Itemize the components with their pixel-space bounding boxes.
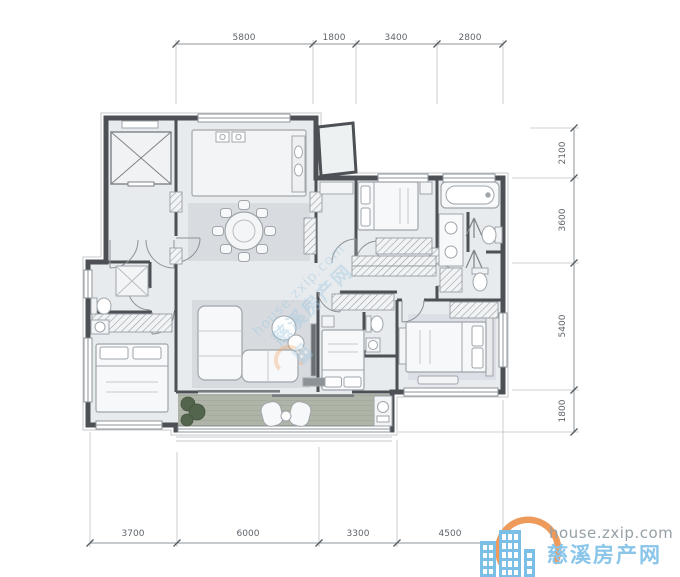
dim-top-2: 1800 [323, 33, 346, 43]
dim-right-1: 2100 [558, 141, 568, 164]
bedroom4-south-window [96, 421, 162, 429]
bedroom2-wardrobe [376, 238, 432, 254]
dimension-bottom: 3700 6000 3300 4500 [87, 529, 507, 547]
bed [322, 330, 364, 390]
column [170, 248, 182, 264]
bath-cabinet [440, 268, 462, 292]
dim-right-2: 3600 [558, 208, 568, 231]
bed [406, 318, 493, 376]
dim-right-4: 1800 [558, 399, 568, 422]
bathtub-icon [441, 182, 499, 208]
sink-icon [292, 136, 305, 192]
floor-plan-canvas: 5800 1800 3400 2800 2100 3600 5400 1800 … [0, 0, 680, 577]
bedroom3-wardrobe [332, 294, 394, 310]
dimension-right: 2100 3600 5400 1800 [558, 125, 578, 436]
dim-top-1: 5800 [233, 33, 256, 43]
sink-icon [91, 320, 109, 334]
bedroom2-window [378, 174, 428, 182]
hall-closet [352, 266, 436, 276]
bed [96, 344, 168, 412]
nightstand [322, 316, 334, 327]
dining-room [213, 201, 276, 262]
bench [418, 376, 458, 384]
bed [358, 182, 418, 230]
floor-plan-page: 5800 1800 3400 2800 2100 3600 5400 1800 … [0, 0, 680, 577]
dim-bottom-1: 3700 [122, 529, 145, 539]
master-east-window [499, 313, 507, 367]
column [310, 192, 322, 212]
nightstand [420, 182, 432, 194]
hall-closet [352, 256, 436, 266]
sideboard [304, 218, 316, 254]
dimension-top: 5800 1800 3400 2800 [173, 33, 507, 48]
shower-stall [116, 266, 148, 296]
toilet-icon [91, 298, 111, 314]
column [170, 192, 182, 212]
dim-bottom-2: 6000 [237, 529, 260, 539]
dim-top-4: 2800 [459, 33, 482, 43]
balcony-glazing [178, 426, 390, 432]
lobby-vent [122, 121, 158, 128]
pantry [320, 182, 353, 194]
utility-closet [374, 396, 392, 426]
bedroom-4 [96, 344, 168, 412]
sink-icon [366, 338, 380, 352]
vanity [439, 214, 463, 266]
dim-bottom-4: 4500 [439, 529, 462, 539]
floor-plan [83, 113, 508, 441]
logo-site-text: house.zxip.com [549, 524, 673, 542]
logo-brand-text: 慈溪房产网 [547, 543, 662, 567]
dining-table [225, 212, 263, 250]
toilet-icon [366, 316, 383, 332]
dim-bottom-3: 3300 [347, 529, 370, 539]
toilet-icon [472, 268, 488, 291]
dresser [399, 328, 406, 364]
headboard [486, 318, 493, 376]
bath-window [443, 174, 495, 182]
kitchen-island [192, 130, 306, 196]
bath4-west-window [84, 270, 92, 298]
bedroom4-west-window [84, 338, 92, 402]
dim-right-3: 5400 [558, 314, 568, 337]
kitchen [192, 130, 306, 196]
logo-buildings-icon [480, 530, 535, 577]
site-logo: house.zxip.com 慈溪房产网 [480, 520, 673, 577]
equipment-platform [318, 123, 356, 176]
elevator-icon [111, 132, 171, 186]
master-wardrobe [450, 302, 498, 318]
dim-top-3: 3400 [385, 33, 408, 43]
master-south-window [404, 388, 498, 396]
kitchen-window [198, 114, 290, 122]
toilet-icon [482, 226, 502, 244]
